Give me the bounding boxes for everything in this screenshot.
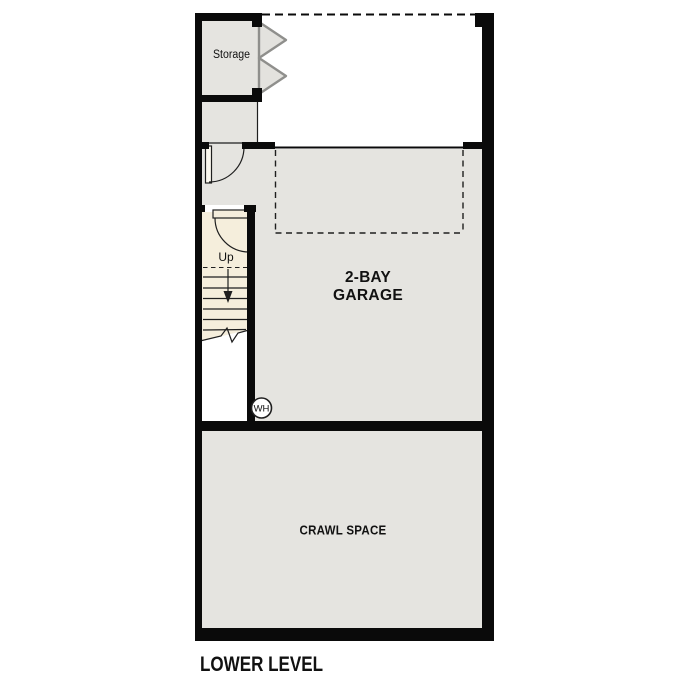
wall-garage-crawl-divider [195, 421, 482, 431]
vestibule-floor [202, 102, 258, 149]
wall-left [195, 13, 202, 641]
double-door-leaf-top [259, 22, 286, 58]
stair-tread [203, 330, 246, 331]
door-leaf-vestibule [206, 146, 212, 183]
wall-stair-left-stub [195, 205, 205, 212]
wall-top-storage [195, 13, 262, 21]
wall-corner-top-right [475, 13, 494, 27]
stairs-up-label: Up [218, 250, 234, 264]
wall-right [482, 13, 494, 641]
water-heater-label: WH [254, 404, 270, 415]
wall-garage-front-left-stub [195, 142, 209, 149]
floor-plan-page: WH Storage Up 2-BAY GARAGE CRAWL SPACE L… [0, 0, 687, 687]
wall-jamb-storage-top [252, 13, 262, 27]
crawl-space-label: CRAWL SPACE [300, 523, 387, 538]
door-leaf-stairs [213, 210, 249, 218]
wall-stairwell-right [247, 205, 255, 431]
wall-storage-bottom [195, 95, 262, 102]
storage-label: Storage [213, 49, 250, 61]
floor-plan-drawing: WH Storage Up 2-BAY GARAGE CRAWL SPACE L… [0, 0, 687, 687]
wall-bottom [195, 628, 494, 641]
wall-garage-front-right [463, 142, 482, 149]
wall-jamb-storage-bottom [252, 88, 262, 102]
garage-label-line1: 2-BAY [345, 269, 391, 286]
wall-garage-front-mid [242, 142, 275, 149]
garage-label-line2: GARAGE [333, 287, 403, 304]
double-door-leaf-bottom [259, 58, 286, 94]
page-title: LOWER LEVEL [200, 653, 323, 676]
